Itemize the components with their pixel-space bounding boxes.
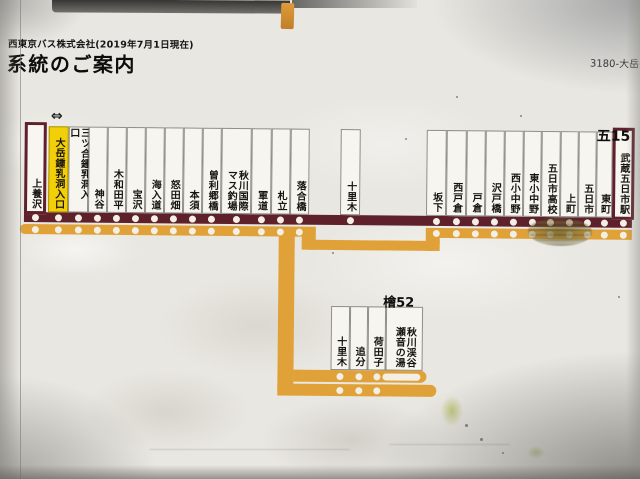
- main-line-stop-dot: [619, 219, 626, 226]
- main-line-stop-dot: [277, 216, 284, 223]
- stop-name: 上養沢: [30, 178, 41, 211]
- stop-name: 東小中野: [526, 173, 537, 216]
- main-line-stop-dot: [491, 218, 498, 225]
- stop-label: 曽利郷橋: [202, 128, 222, 214]
- dirt-speck: [405, 138, 407, 140]
- stop-name: 十里木: [335, 336, 346, 369]
- stop-label: 三ツ合鍾乳洞入口: [68, 126, 89, 212]
- branch-line-stop-dot: [74, 226, 81, 233]
- main-line-stop-dot: [583, 219, 590, 226]
- stop-name: 海入道: [149, 179, 160, 212]
- main-line-stop-dot: [151, 215, 158, 222]
- branch-spur-vertical: [277, 230, 295, 395]
- stop-label: 秋川渓谷 瀬音の湯: [385, 306, 423, 370]
- branch-terminal-dash: [382, 373, 420, 380]
- stop-name: 木和田平: [111, 169, 122, 212]
- main-line-stop-dot: [565, 219, 572, 226]
- stop-label: 神谷: [88, 127, 108, 213]
- dirt-speck: [520, 115, 522, 117]
- branch-spur-stop-dot: [355, 387, 362, 394]
- branch-line-stop-dot: [528, 230, 535, 237]
- branch-line-stop-dot: [565, 231, 572, 238]
- stop-label: 十里木: [340, 129, 361, 215]
- stop-label: 五日市高校: [541, 131, 561, 217]
- main-line-stop-dot: [510, 218, 517, 225]
- stop-name: 秋川渓谷 瀬音の湯: [393, 326, 415, 369]
- main-line-stop-dot: [113, 214, 120, 221]
- dirt-speck: [568, 205, 570, 207]
- main-line-stop-dot: [94, 214, 101, 221]
- dirt-speck: [456, 96, 458, 98]
- main-line-stop-dot: [232, 216, 239, 223]
- branch-route-dip-bar: [302, 240, 440, 251]
- branch-line-stop-dot: [31, 226, 38, 233]
- stop-label: 木和田平: [107, 127, 127, 213]
- main-line-stop-dot: [31, 214, 38, 221]
- main-line-stop-dot: [132, 215, 139, 222]
- sign-code: 3180-大岳: [590, 54, 639, 70]
- branch-line-stop-dot: [113, 226, 120, 233]
- stop-name: 宝沢: [130, 189, 141, 212]
- branch-line-stop-dot: [151, 227, 158, 234]
- dirt-speck: [618, 296, 620, 298]
- stop-name: 大岳鍾乳洞入口: [53, 137, 65, 211]
- stop-label: 西戸倉: [446, 130, 467, 216]
- branch-spur-stop-dot: [373, 387, 380, 394]
- stop-label: 荷田子: [367, 306, 386, 370]
- route-number-branch: 檜52: [383, 291, 414, 310]
- stop-label: 海入道: [145, 127, 165, 213]
- stop-name: 坂下: [430, 192, 441, 215]
- stop-label: 宝沢: [126, 127, 146, 213]
- main-line-stop-dot: [472, 218, 479, 225]
- stop-label: 落合橋: [290, 129, 310, 215]
- branch-line-stop-dot: [232, 228, 239, 235]
- branch-line-stop-dot: [432, 229, 439, 236]
- main-line-stop-dot: [528, 218, 535, 225]
- branch-spur-stop-dot: [355, 373, 362, 380]
- branch-line-stop-dot: [452, 230, 459, 237]
- branch-line-stop-dot: [472, 230, 479, 237]
- dirt-speck: [502, 452, 504, 454]
- main-line-stop-dot: [257, 216, 264, 223]
- stop-label: 戸倉: [466, 130, 486, 216]
- main-line-stop-dot: [189, 215, 196, 222]
- branch-line-stop-dot: [491, 230, 498, 237]
- stop-name: 武蔵五日市駅: [617, 153, 629, 217]
- transfer-arrows-icon: ⇔: [51, 108, 63, 124]
- main-line-stop-dot: [547, 219, 554, 226]
- stop-label: 十里木: [330, 306, 350, 370]
- branch-line-stop-dot: [208, 227, 215, 234]
- branch-spur-stop-dot: [336, 373, 343, 380]
- stop-name: 十里木: [344, 181, 355, 214]
- main-line-stop-dot: [170, 215, 177, 222]
- dirt-speck: [480, 438, 483, 441]
- stop-name: 沢戸橋: [489, 183, 500, 216]
- stop-name: 軍道: [255, 191, 266, 214]
- stop-name: 秋川国際 マス釣場: [225, 170, 247, 213]
- stop-name: 西戸倉: [450, 182, 461, 215]
- stop-name: 怒田畑: [168, 179, 179, 212]
- stop-label: 怒田畑: [164, 127, 184, 213]
- branch-line-stop-dot: [277, 228, 284, 235]
- stop-name: 五日市高校: [545, 163, 557, 217]
- stop-name: 札立: [275, 191, 286, 214]
- stop-name: 戸倉: [470, 193, 481, 216]
- main-line-stop-dot: [432, 217, 439, 224]
- stop-name: 神谷: [92, 189, 103, 212]
- branch-line-stop-dot: [547, 231, 554, 238]
- main-line-stop-dot: [54, 214, 61, 221]
- branch-line-stop-dot: [170, 227, 177, 234]
- main-line-stop-dot: [346, 217, 353, 224]
- photo-of-bus-route-sign: 西東京バス株式会社(2019年7月1日現在) 系統のご案内 3180-大岳 五1…: [0, 0, 640, 479]
- dirt-speck: [332, 252, 334, 254]
- main-line-stop-dot: [296, 216, 303, 223]
- branch-line-stop-dot: [600, 231, 607, 238]
- branch-route-line-left: [20, 224, 316, 237]
- branch-line-stop-dot: [189, 227, 196, 234]
- stop-label: 沢戸橋: [485, 130, 505, 216]
- branch-line-stop-dot: [510, 230, 517, 237]
- branch-line-stop-dot: [54, 226, 61, 233]
- stop-label: 本須: [183, 128, 203, 214]
- main-line-stop-dot: [600, 219, 607, 226]
- dirt-speck: [465, 424, 468, 427]
- stop-label: 秋川国際 マス釣場: [221, 128, 252, 214]
- stop-label: 上養沢: [24, 122, 47, 214]
- branch-line-stop-dot: [619, 231, 626, 238]
- stop-name: 追分: [353, 347, 364, 370]
- branch-spur-stop-dot: [336, 387, 343, 394]
- main-line-stop-dot: [452, 218, 459, 225]
- stop-label: 坂下: [426, 130, 447, 216]
- stop-name: 荷田子: [371, 336, 382, 369]
- branch-line-stop-dot: [583, 231, 590, 238]
- stop-label: 西小中野: [504, 131, 524, 217]
- branch-line-stop-dot: [94, 226, 101, 233]
- stop-name: 東町: [598, 194, 609, 217]
- stop-label: 大岳鍾乳洞入口: [48, 126, 69, 212]
- stop-name: 西小中野: [508, 172, 519, 215]
- stop-name: 曽利郷橋: [206, 170, 217, 213]
- stop-label: 東小中野: [523, 131, 542, 217]
- main-line-stop-dot: [74, 214, 81, 221]
- stop-label: 軍道: [251, 128, 272, 214]
- stop-label: 札立: [271, 128, 291, 214]
- stop-name: 落合橋: [294, 181, 305, 214]
- stop-name: 三ツ合鍾乳洞入口: [67, 127, 90, 211]
- branch-spur-stop-dot: [373, 373, 380, 380]
- stop-name: 五日市: [581, 183, 592, 216]
- branch-line-stop-dot: [257, 228, 264, 235]
- sign-title: 系統のご案内: [7, 48, 136, 78]
- main-line-stop-dot: [208, 215, 215, 222]
- route-number-main: 五15: [597, 125, 631, 145]
- stop-label: 追分: [349, 306, 368, 370]
- stop-name: 本須: [187, 190, 198, 213]
- branch-line-stop-dot: [296, 228, 303, 235]
- branch-line-stop-dot: [132, 227, 139, 234]
- stop-label: 五日市: [578, 131, 597, 217]
